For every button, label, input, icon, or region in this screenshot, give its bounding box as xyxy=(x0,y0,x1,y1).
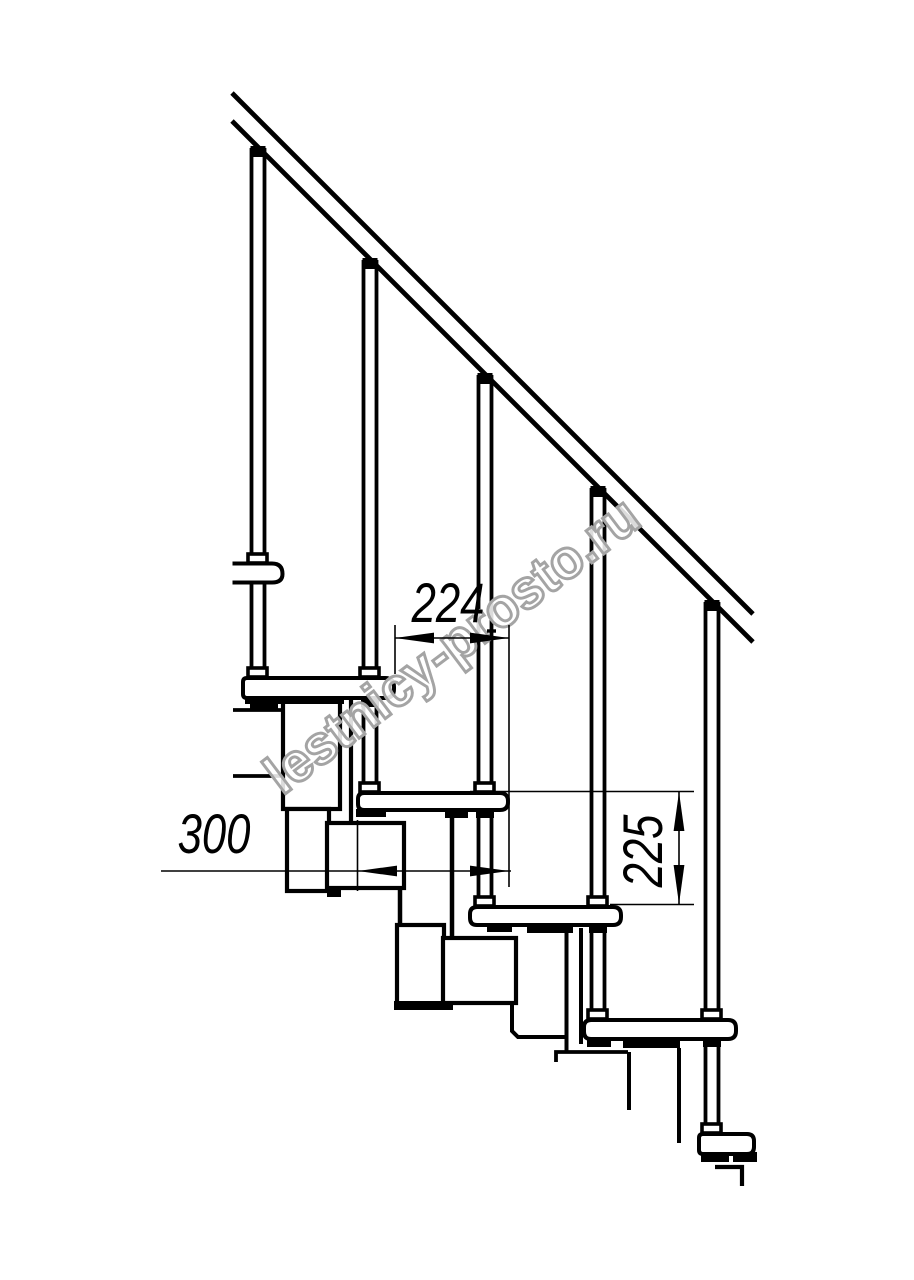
svg-text:300: 300 xyxy=(178,803,251,865)
svg-text:225: 225 xyxy=(612,814,674,889)
svg-text:224: 224 xyxy=(411,572,485,634)
